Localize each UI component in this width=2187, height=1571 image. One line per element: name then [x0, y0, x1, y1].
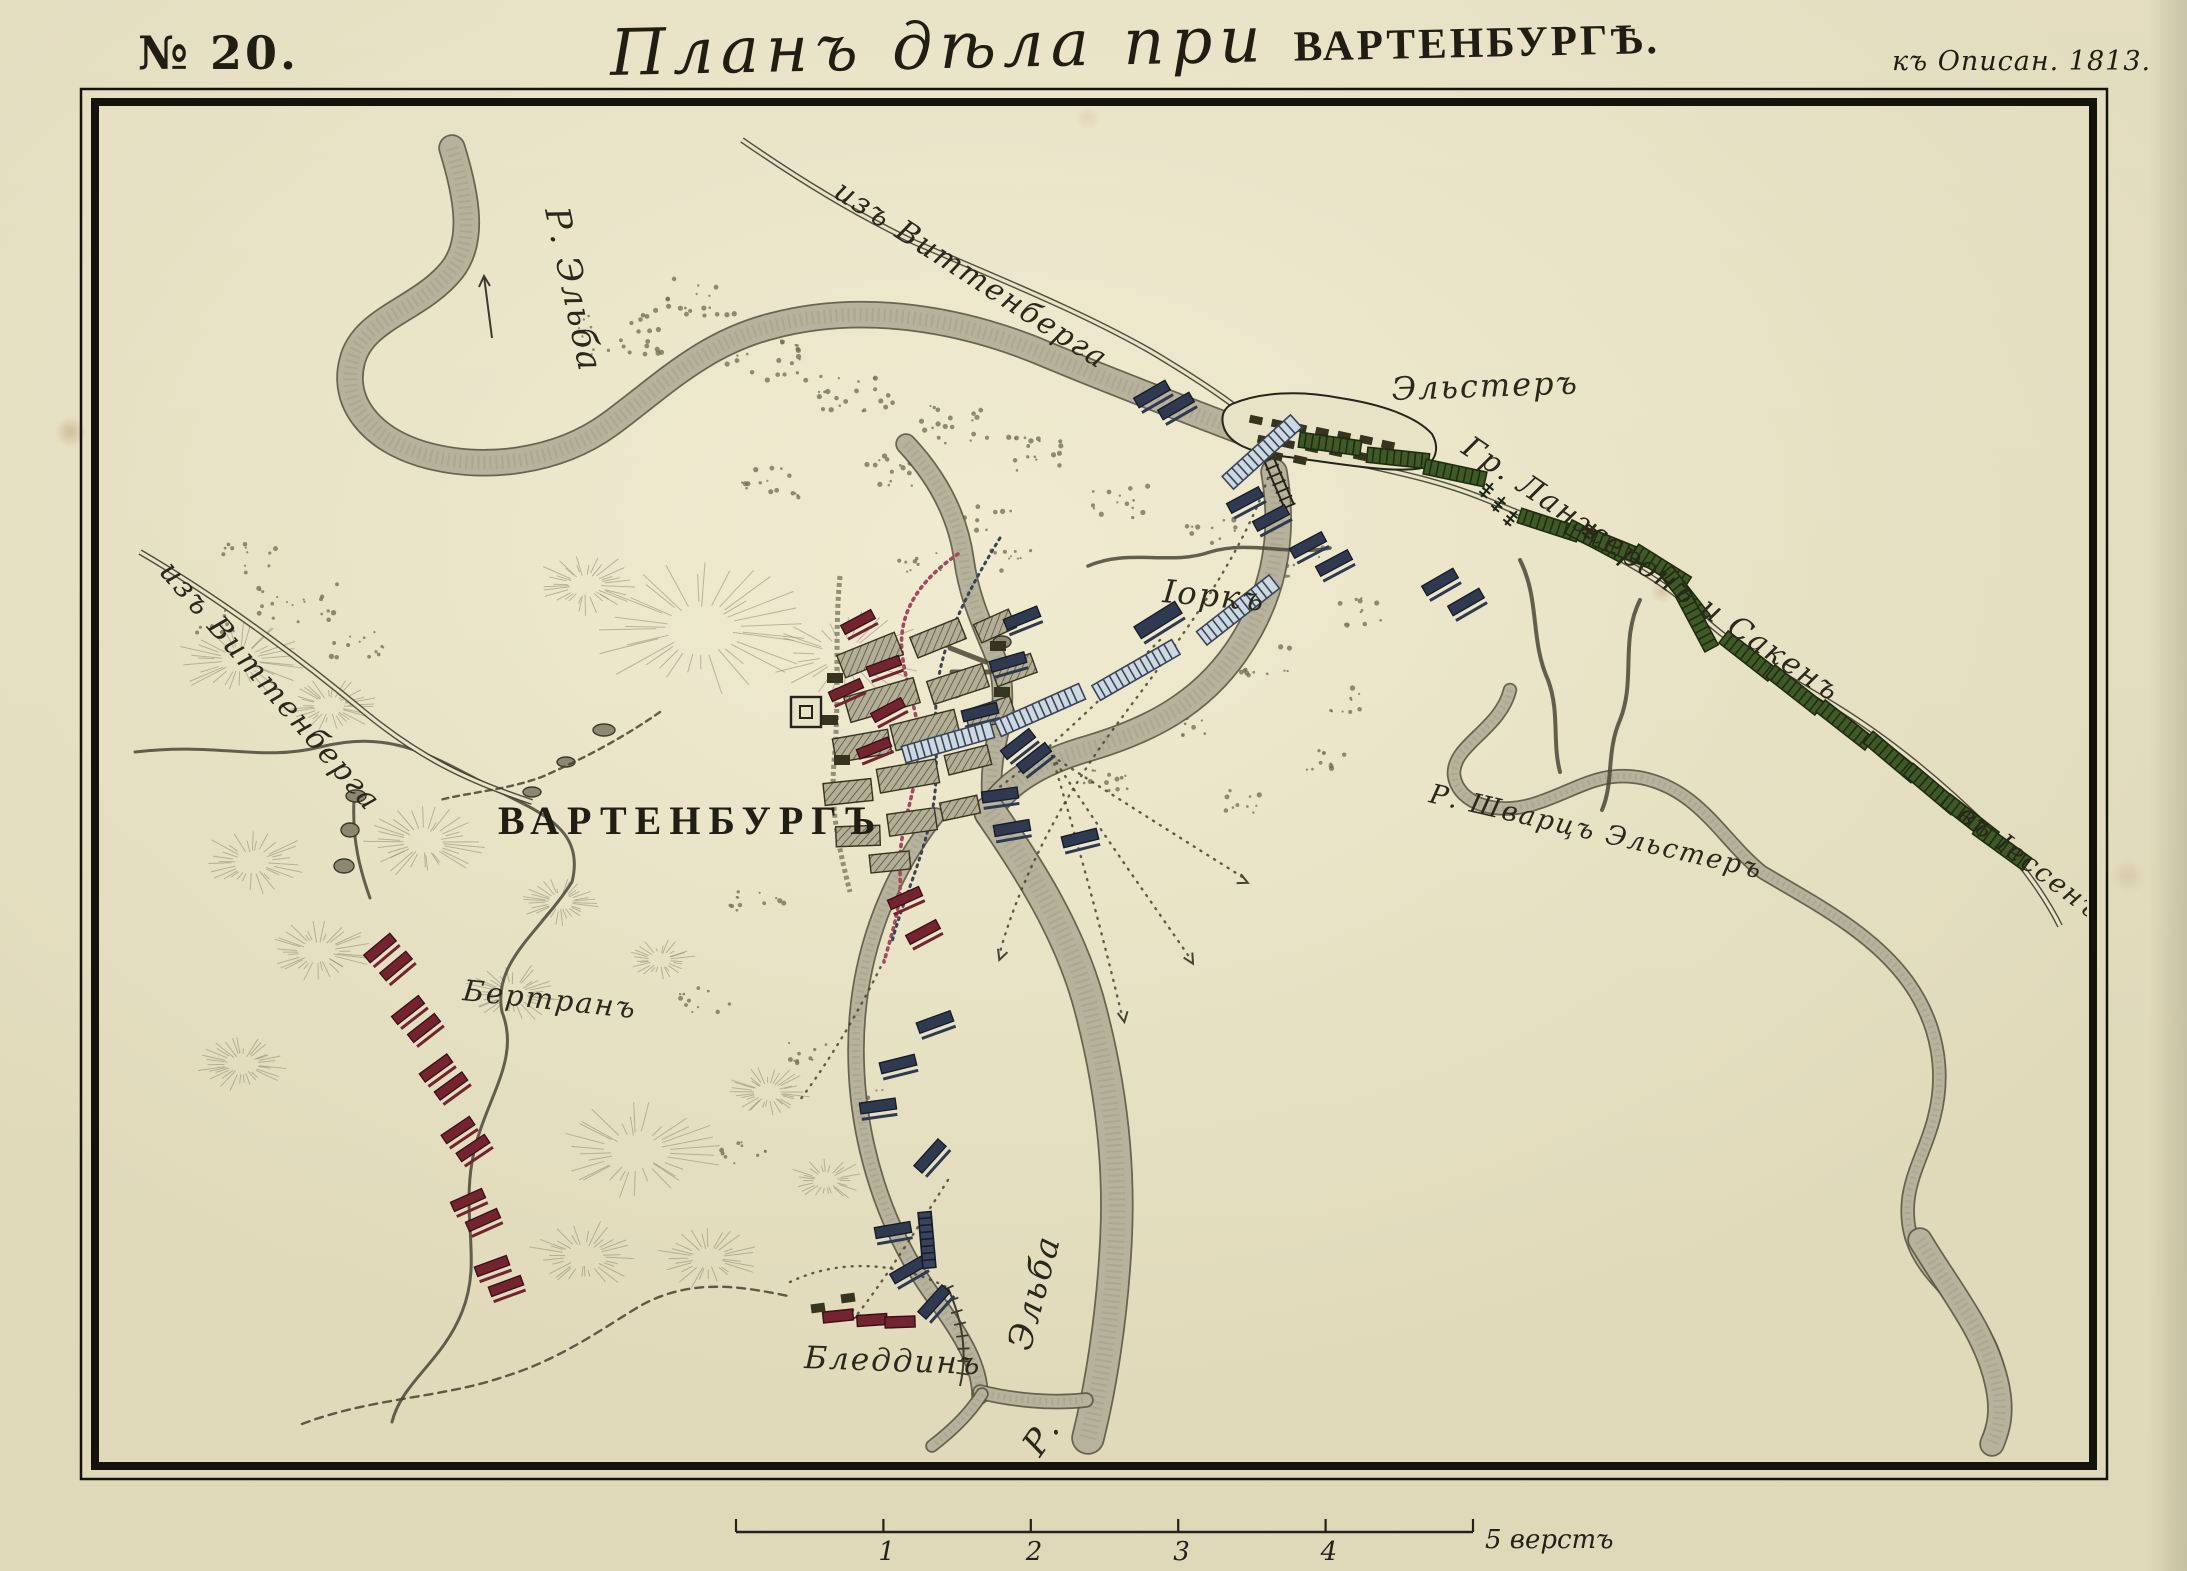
scale-tick-label: 2 — [1025, 1537, 1043, 1567]
scrub-cluster — [1091, 484, 1150, 520]
town-building-hatched — [876, 759, 939, 793]
movement-dashed-line — [1052, 756, 1244, 878]
river — [1920, 1240, 2000, 1444]
scrub-cluster — [1083, 769, 1129, 792]
scale-tick-label: 4 — [1320, 1537, 1338, 1567]
troop-unit-allied — [1227, 487, 1267, 520]
scrub-cluster — [729, 890, 787, 912]
town-building-solid — [834, 755, 850, 765]
scrub-cluster — [1306, 749, 1347, 771]
map-label-corps-langeron-sacken: Гр. Ланжеронъ и Сакенъ — [1455, 429, 1847, 709]
troop-unit-allied — [879, 1054, 918, 1080]
river — [980, 1392, 1086, 1402]
hill-hachure — [275, 921, 371, 980]
hill-hachure — [793, 1159, 861, 1198]
river — [932, 1394, 982, 1446]
scrub-cluster — [678, 986, 731, 1014]
scrub-cluster — [1185, 517, 1238, 545]
scale-tick-label: 3 — [1173, 1537, 1190, 1567]
hill-hachure — [198, 1038, 286, 1091]
map-label-road-from-wittenberg-left: изъ Виттенберга — [152, 554, 388, 818]
scrub-cluster — [1006, 435, 1063, 472]
scrub-cluster — [1338, 597, 1382, 627]
hill-hachure — [363, 806, 485, 874]
troop-unit-allied — [1061, 828, 1100, 854]
troop-unit-allied — [916, 1011, 956, 1040]
troop-unit-allied — [1448, 588, 1488, 622]
hills-layer — [180, 556, 917, 1287]
scrub-cluster — [719, 1141, 767, 1164]
movement-arrowhead — [1118, 1011, 1130, 1023]
movement-lines-layer — [302, 433, 1295, 1424]
stream — [1520, 560, 1560, 772]
hill-hachure — [523, 879, 598, 926]
scrub-cluster — [788, 1042, 827, 1065]
troop-unit-french — [474, 1255, 512, 1283]
movement-arrowhead — [1184, 953, 1198, 967]
town-building-solid — [822, 715, 838, 725]
troop-unit-allied — [914, 1139, 951, 1178]
scale-bar: 12345 верстъ — [736, 1519, 1614, 1567]
hill-hachure — [599, 562, 804, 694]
hill-hachure — [730, 1068, 810, 1116]
river-flow-arrow — [479, 276, 492, 338]
scale-tick-label: 1 — [878, 1537, 895, 1567]
roads-layer — [140, 140, 2060, 926]
scrub-cluster — [329, 631, 385, 660]
map-label-road-to-jessen: въ Іессенъ — [1952, 799, 2107, 927]
troop-units-layer — [364, 380, 2032, 1324]
pond — [523, 787, 541, 797]
movement-arrowhead — [1237, 874, 1250, 887]
troop-unit-french — [488, 1275, 526, 1303]
scrub-cluster — [1224, 789, 1262, 814]
scrub-cluster — [989, 549, 1032, 573]
movement-dashed-line — [302, 1287, 788, 1424]
map-sheet: { "page":{"width":2187,"height":1571}, "… — [0, 0, 2187, 1571]
town-building-solid — [994, 687, 1010, 697]
scrub-cluster — [908, 405, 989, 444]
map-label-town-elster: Эльстеръ — [1391, 363, 1580, 408]
scale-caption: 5 верстъ — [1485, 1525, 1614, 1555]
hill-hachure — [566, 1102, 720, 1197]
hill-hachure — [631, 940, 694, 979]
scrub-cluster — [256, 582, 339, 623]
movement-dashed-line — [440, 712, 660, 800]
scrub-cluster — [665, 277, 736, 318]
troop-unit-allied — [1422, 568, 1462, 602]
hill-hachure — [658, 1228, 755, 1287]
map-label-river-elbe-northwest: Р. Эльба — [536, 203, 610, 376]
manor-symbol — [791, 697, 821, 727]
map-label-town-bleddin: Бледдинъ — [803, 1340, 982, 1382]
marching-column-prussian — [1092, 640, 1180, 701]
bleddin-house — [857, 1313, 888, 1326]
hill-hachure — [529, 1221, 634, 1282]
frame-outer-line — [81, 89, 2107, 1479]
bleddin-house — [885, 1316, 915, 1328]
troop-unit-french — [906, 920, 944, 951]
bleddin-house — [823, 1309, 854, 1323]
map-label-town-wartenburg: ВАРТЕНБУРГЪ — [498, 798, 883, 843]
town-building-solid — [827, 673, 843, 683]
troop-unit-allied — [1316, 550, 1356, 583]
movement-dashed-line — [800, 960, 884, 1100]
map-label-river-elbe-south-initial: Р. — [1014, 1409, 1069, 1464]
troop-unit-allied — [1290, 532, 1330, 565]
hill-hachure — [208, 831, 302, 893]
town-building-hatched — [869, 851, 911, 873]
scrub-cluster — [221, 542, 278, 574]
hill-hachure — [543, 556, 635, 615]
bleddin-house — [840, 1293, 855, 1304]
pond — [334, 859, 354, 873]
map-frame — [81, 89, 2107, 1479]
scrub-cluster — [897, 552, 942, 573]
scrub-cluster — [1329, 685, 1362, 714]
scrub-cluster — [817, 375, 895, 413]
map-label-river-elbe-south: Эльба — [1000, 1231, 1069, 1355]
stream — [950, 648, 986, 662]
scrub-cluster — [741, 466, 801, 500]
pond — [593, 724, 615, 736]
map-label-road-from-wittenberg-top: изъ Виттенберга — [828, 173, 1115, 376]
map-canvas: изъ Виттенбергаизъ ВиттенбергаР. ЭльбаЭл… — [0, 0, 2187, 1571]
pond — [341, 823, 359, 837]
town-building-solid — [990, 641, 1006, 651]
